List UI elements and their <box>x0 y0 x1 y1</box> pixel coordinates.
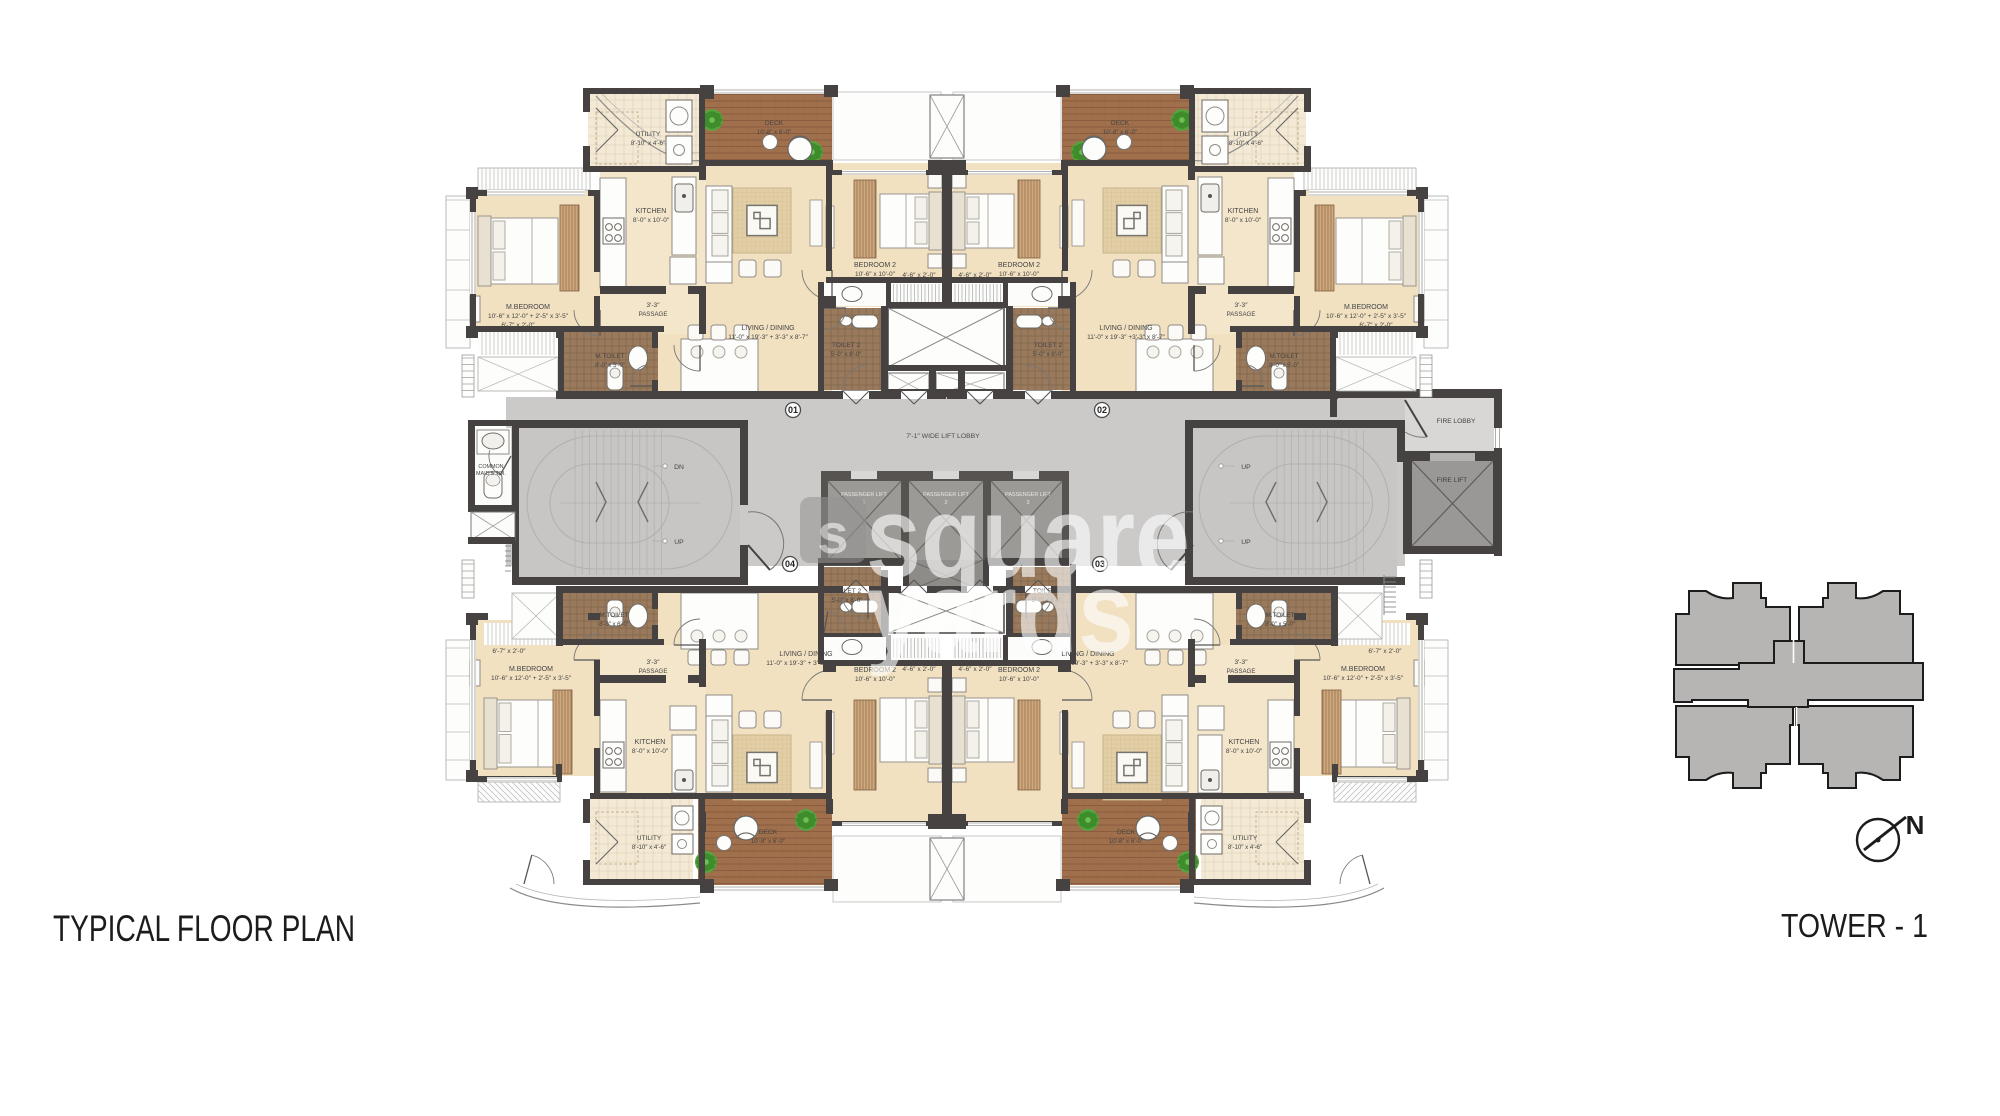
svg-text:M.TOILET: M.TOILET <box>1265 612 1294 619</box>
svg-text:PASSAGE: PASSAGE <box>1227 668 1256 675</box>
svg-text:M.TOILET: M.TOILET <box>1269 353 1298 360</box>
svg-text:COMMON: COMMON <box>478 464 503 470</box>
svg-text:LIVING / DINING: LIVING / DINING <box>1099 325 1152 332</box>
svg-text:6′-7″ x 2′-0″: 6′-7″ x 2′-0″ <box>501 322 535 329</box>
svg-text:4′-6″ x 2′-0″: 4′-6″ x 2′-0″ <box>958 272 992 279</box>
svg-text:M.BEDROOM: M.BEDROOM <box>1341 666 1385 673</box>
svg-text:PASSAGE: PASSAGE <box>639 668 668 675</box>
svg-text:M.BEDROOM: M.BEDROOM <box>506 304 550 311</box>
svg-text:3′-3″: 3′-3″ <box>646 659 660 666</box>
svg-text:KITCHEN: KITCHEN <box>1229 739 1260 746</box>
svg-text:TYPICAL FLOOR PLAN: TYPICAL FLOOR PLAN <box>53 908 355 949</box>
svg-text:BEDROOM 2: BEDROOM 2 <box>854 262 896 269</box>
svg-text:M.TOILET: M.TOILET <box>599 612 628 619</box>
svg-text:10′-6″ x 12′-0″ + 2′-5″ x 3′-5: 10′-6″ x 12′-0″ + 2′-5″ x 3′-5″ <box>1326 313 1407 320</box>
svg-text:8′-0″ x 5′-0″: 8′-0″ x 5′-0″ <box>1269 363 1299 369</box>
svg-text:10′-6″ x 12′-0″ + 2′-5″ x 3′-5: 10′-6″ x 12′-0″ + 2′-5″ x 3′-5″ <box>491 675 572 682</box>
svg-text:TOILET 2: TOILET 2 <box>1034 342 1063 349</box>
svg-text:6′-7″ x 2′-0″: 6′-7″ x 2′-0″ <box>1359 322 1393 329</box>
svg-text:s: s <box>817 502 848 565</box>
svg-text:UTILITY: UTILITY <box>636 131 661 138</box>
svg-text:KITCHEN: KITCHEN <box>636 208 667 215</box>
svg-text:6′-7″ x 2′-0″: 6′-7″ x 2′-0″ <box>1368 648 1402 655</box>
svg-text:KITCHEN: KITCHEN <box>635 739 666 746</box>
svg-text:11′-0″ x 19′-3″ + 3′-3″ x 8′-7: 11′-0″ x 19′-3″ + 3′-3″ x 8′-7″ <box>728 334 808 341</box>
svg-text:MAID'S TOI.: MAID'S TOI. <box>476 471 506 477</box>
svg-text:TOILET 2: TOILET 2 <box>833 588 862 595</box>
svg-text:8′-10″ x 4′-6″: 8′-10″ x 4′-6″ <box>632 844 667 851</box>
svg-text:10′-6″ x 10′-0″: 10′-6″ x 10′-0″ <box>999 676 1040 683</box>
svg-text:8′-10″ x 4′-6″: 8′-10″ x 4′-6″ <box>1228 844 1263 851</box>
svg-text:10′-6″ x 10′-0″: 10′-6″ x 10′-0″ <box>999 271 1040 278</box>
svg-text:4′-6″ x 2′-0″: 4′-6″ x 2′-0″ <box>902 272 936 279</box>
svg-text:UTILITY: UTILITY <box>1233 835 1258 842</box>
svg-text:DN: DN <box>674 464 684 471</box>
svg-text:N: N <box>1906 810 1925 840</box>
svg-text:UTILITY: UTILITY <box>1234 131 1259 138</box>
svg-text:10′-8″ x 6′-0″: 10′-8″ x 6′-0″ <box>751 838 786 845</box>
svg-text:DECK: DECK <box>765 120 784 127</box>
svg-text:UP: UP <box>1241 539 1251 546</box>
svg-text:01: 01 <box>788 405 798 415</box>
svg-text:TOWER - 1: TOWER - 1 <box>1781 907 1928 944</box>
svg-text:8′-0″ x 10′-0″: 8′-0″ x 10′-0″ <box>633 217 670 224</box>
svg-text:5′-0″ x 8′-0″: 5′-0″ x 8′-0″ <box>1033 351 1065 358</box>
svg-text:UP: UP <box>674 539 684 546</box>
svg-text:UTILITY: UTILITY <box>637 835 662 842</box>
svg-text:02: 02 <box>1097 405 1107 415</box>
svg-text:FIRE LIFT: FIRE LIFT <box>1437 477 1467 484</box>
svg-text:yards: yards <box>866 547 1134 677</box>
svg-text:04: 04 <box>785 559 795 569</box>
svg-text:11′-0″ x 19′-3″ +3′-3″ x 8′-7″: 11′-0″ x 19′-3″ +3′-3″ x 8′-7″ <box>1087 334 1165 341</box>
svg-text:8′-0″ x 10′-0″: 8′-0″ x 10′-0″ <box>632 748 669 755</box>
svg-text:DECK: DECK <box>1117 829 1136 836</box>
svg-text:DECK: DECK <box>759 829 778 836</box>
svg-text:10′-8″ x 6′-0″: 10′-8″ x 6′-0″ <box>757 129 792 136</box>
svg-text:10′-6″ x 12′-0″ + 2′-5″ x 3′-5: 10′-6″ x 12′-0″ + 2′-5″ x 3′-5″ <box>488 313 569 320</box>
svg-text:8′-0″ x 5′-0″: 8′-0″ x 5′-0″ <box>1265 622 1295 628</box>
svg-text:LIVING / DINING: LIVING / DINING <box>779 651 832 658</box>
svg-text:3′-3″: 3′-3″ <box>646 302 660 309</box>
svg-text:8′-0″ x 6′-0″: 8′-0″ x 6′-0″ <box>599 622 629 628</box>
svg-text:PASSAGE: PASSAGE <box>1227 311 1256 318</box>
svg-text:8′-0″ x 10′-0″: 8′-0″ x 10′-0″ <box>1225 217 1262 224</box>
svg-text:PASSAGE: PASSAGE <box>639 311 668 318</box>
svg-text:KITCHEN: KITCHEN <box>1228 208 1259 215</box>
svg-text:M.TOILET: M.TOILET <box>595 353 624 360</box>
svg-text:DECK: DECK <box>1111 120 1130 127</box>
svg-text:10′-6″ x 12′-0″ + 2′-5″ x 3′-5: 10′-6″ x 12′-0″ + 2′-5″ x 3′-5″ <box>1323 675 1404 682</box>
svg-text:8′-10″ x 4′-6″: 8′-10″ x 4′-6″ <box>631 140 666 147</box>
svg-text:BEDROOM 2: BEDROOM 2 <box>998 262 1040 269</box>
svg-text:FIRE LOBBY: FIRE LOBBY <box>1437 418 1476 425</box>
svg-text:5′-0″ x 8′-0″: 5′-0″ x 8′-0″ <box>831 351 863 358</box>
svg-text:6′-7″ x 2′-0″: 6′-7″ x 2′-0″ <box>492 648 526 655</box>
svg-text:UP: UP <box>1241 464 1251 471</box>
svg-text:5′-0″ x 8′-0″: 5′-0″ x 8′-0″ <box>832 597 864 604</box>
svg-text:8′-0″ x 10′-0″: 8′-0″ x 10′-0″ <box>1226 748 1263 755</box>
svg-text:11′-0″ x 19′-3″ + 3′-3″ x 8′-7: 11′-0″ x 19′-3″ + 3′-3″ x 8′-7″ <box>766 660 846 667</box>
svg-text:10′-6″ x 10′-0″: 10′-6″ x 10′-0″ <box>855 676 896 683</box>
svg-text:10′-6″ x 10′-0″: 10′-6″ x 10′-0″ <box>855 271 896 278</box>
svg-text:10′-8″ x 6′-0″: 10′-8″ x 6′-0″ <box>1103 129 1138 136</box>
svg-text:LIVING / DINING: LIVING / DINING <box>741 325 794 332</box>
svg-text:10′-8″ x 6′-0″: 10′-8″ x 6′-0″ <box>1109 838 1144 845</box>
svg-text:TOILET 2: TOILET 2 <box>832 342 861 349</box>
svg-text:7′-1″ WIDE LIFT LOBBY: 7′-1″ WIDE LIFT LOBBY <box>906 433 980 440</box>
svg-text:8′-10″ x 4′-6″: 8′-10″ x 4′-6″ <box>1229 140 1264 147</box>
svg-text:8′-0″ x 5′-0″: 8′-0″ x 5′-0″ <box>595 363 625 369</box>
svg-text:M.BEDROOM: M.BEDROOM <box>509 666 553 673</box>
svg-text:3′-3″: 3′-3″ <box>1234 302 1248 309</box>
svg-text:M.BEDROOM: M.BEDROOM <box>1344 304 1388 311</box>
svg-text:3′-3″: 3′-3″ <box>1234 659 1248 666</box>
